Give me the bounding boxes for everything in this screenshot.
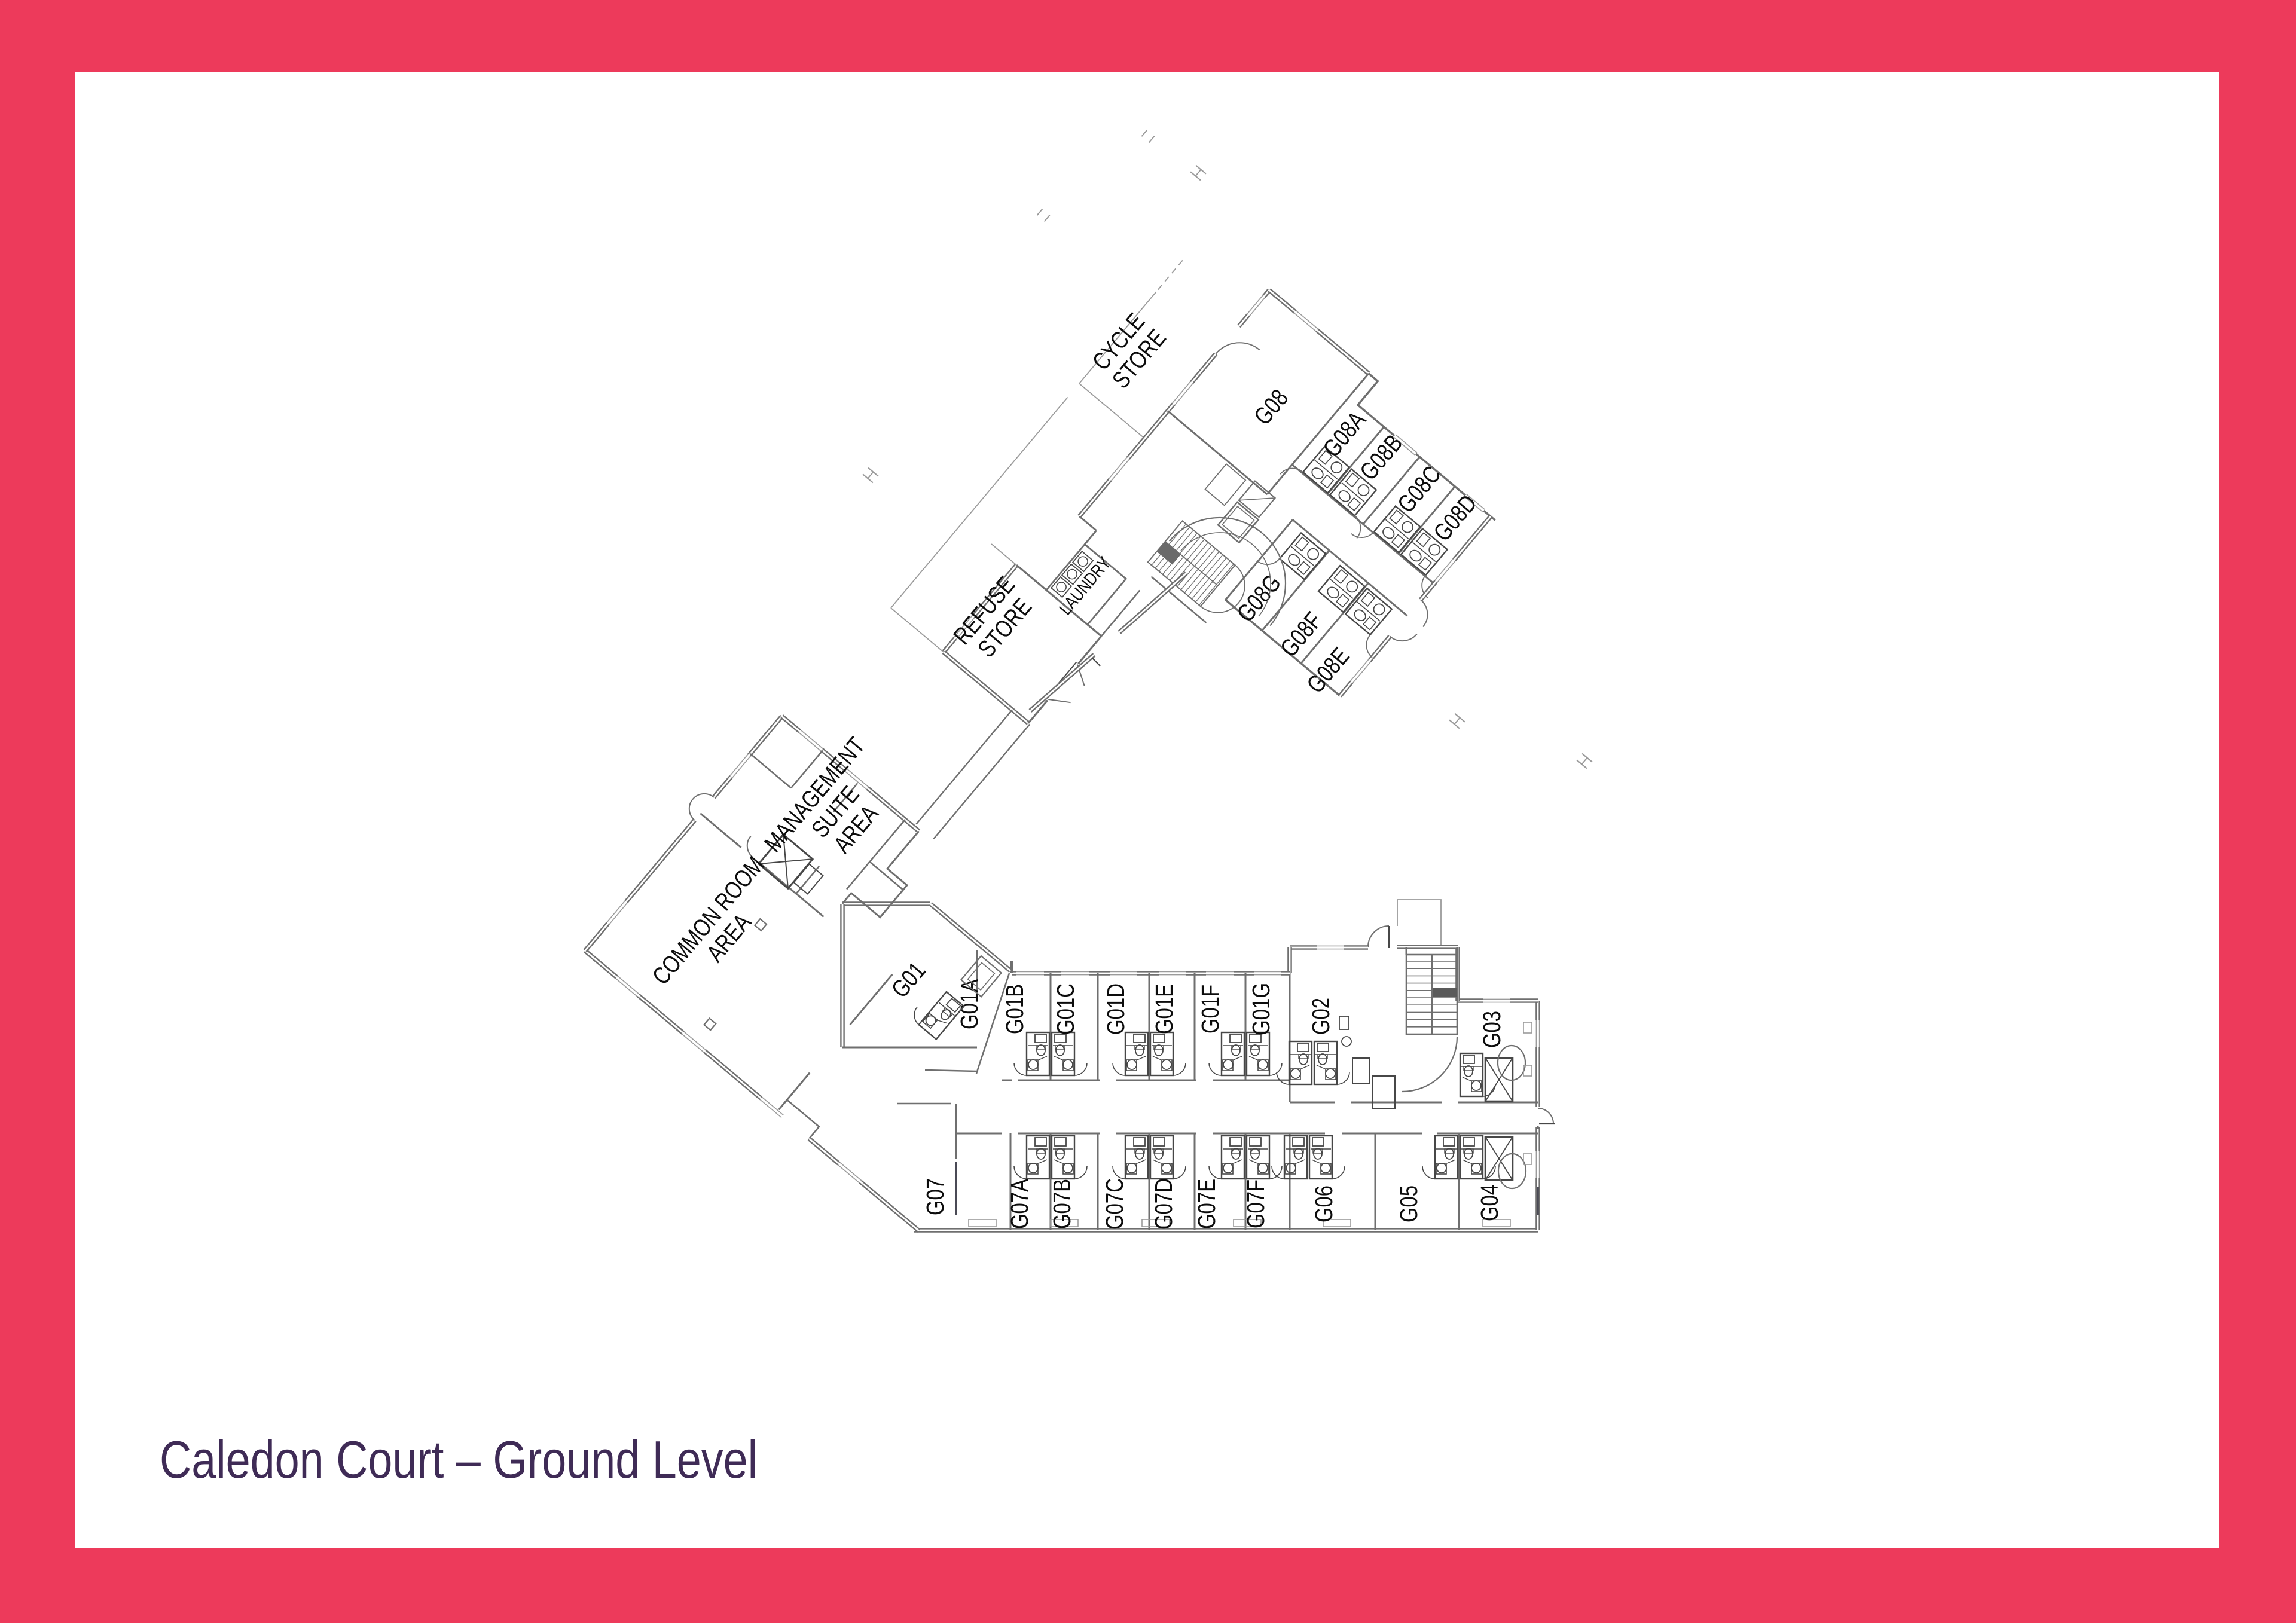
svg-text:G07B: G07B <box>1048 1179 1076 1229</box>
svg-text:G01E: G01E <box>1150 984 1178 1034</box>
svg-text:G01F: G01F <box>1196 985 1224 1034</box>
svg-text:G01C: G01C <box>1052 983 1079 1035</box>
svg-text:G07: G07 <box>921 1178 949 1215</box>
svg-text:G05: G05 <box>1395 1185 1422 1222</box>
svg-text:Caledon Court – Ground Level: Caledon Court – Ground Level <box>160 1430 758 1489</box>
svg-text:G02: G02 <box>1307 998 1335 1035</box>
svg-text:G06: G06 <box>1310 1185 1338 1222</box>
svg-text:G07D: G07D <box>1150 1178 1177 1230</box>
svg-text:G07F: G07F <box>1242 1179 1269 1228</box>
svg-text:G07C: G07C <box>1101 1178 1128 1230</box>
svg-text:G07A: G07A <box>1006 1178 1033 1229</box>
svg-text:G01G: G01G <box>1247 983 1275 1035</box>
svg-text:G01D: G01D <box>1102 983 1129 1035</box>
svg-text:G03: G03 <box>1478 1011 1506 1048</box>
svg-text:G01B: G01B <box>1001 984 1028 1034</box>
svg-text:G07E: G07E <box>1193 1179 1220 1229</box>
svg-text:G04: G04 <box>1476 1184 1503 1221</box>
